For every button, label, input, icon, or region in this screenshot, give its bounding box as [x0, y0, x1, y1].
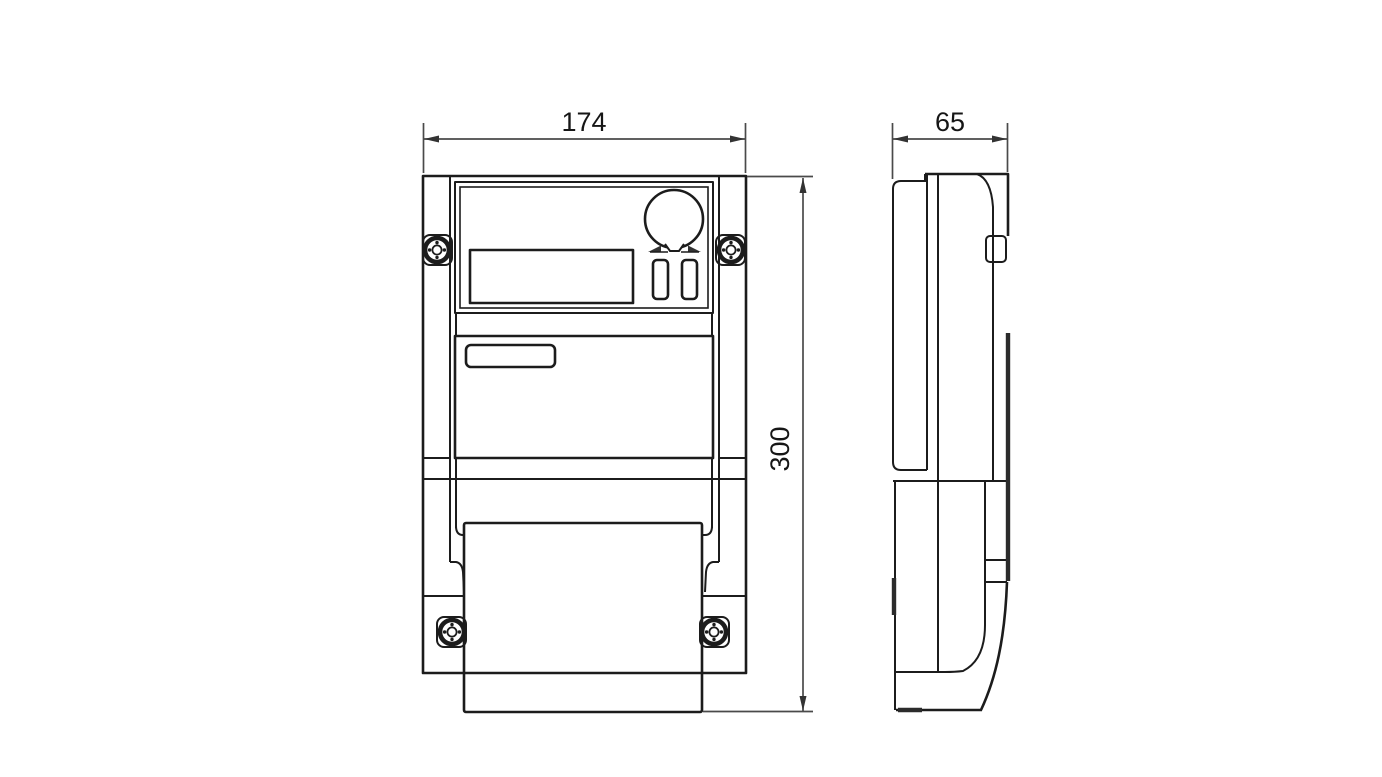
scroll-button-right: [682, 260, 697, 299]
cover-chamfer-left: [450, 562, 464, 592]
dimension-width: 174: [424, 107, 746, 173]
cover-front-face: [977, 174, 993, 481]
optical-port: [645, 190, 703, 248]
sealing-screw: [425, 238, 449, 262]
sealing-screw: [440, 620, 464, 644]
sealing-screw: [702, 620, 726, 644]
dimension-depth-label: 65: [935, 107, 965, 137]
drawing-canvas: 174 65 300: [0, 0, 1382, 777]
body-bottom-profile: [896, 481, 985, 672]
nameplate-panel: [455, 336, 713, 458]
scroll-button-left: [653, 260, 668, 299]
side-button: [986, 236, 1006, 262]
front-view: [423, 176, 746, 712]
arrow-left-icon: [648, 246, 661, 253]
cover-chamfer-right: [705, 562, 719, 592]
label-window: [466, 345, 555, 367]
meter-outline-drawing: 174 65 300: [0, 0, 1382, 777]
terminal-cover: [464, 523, 702, 712]
arrow-right-icon: [688, 246, 701, 253]
dimension-height-label: 300: [765, 426, 795, 471]
dimension-width-label: 174: [561, 107, 606, 137]
display-window: [470, 250, 633, 303]
panel-corner-right: [702, 526, 712, 535]
mounting-plate: [893, 181, 927, 470]
sealing-screw: [719, 238, 743, 262]
dimension-depth: 65: [893, 107, 1008, 179]
side-view: [893, 174, 1008, 710]
optical-port-notch: [665, 244, 684, 251]
